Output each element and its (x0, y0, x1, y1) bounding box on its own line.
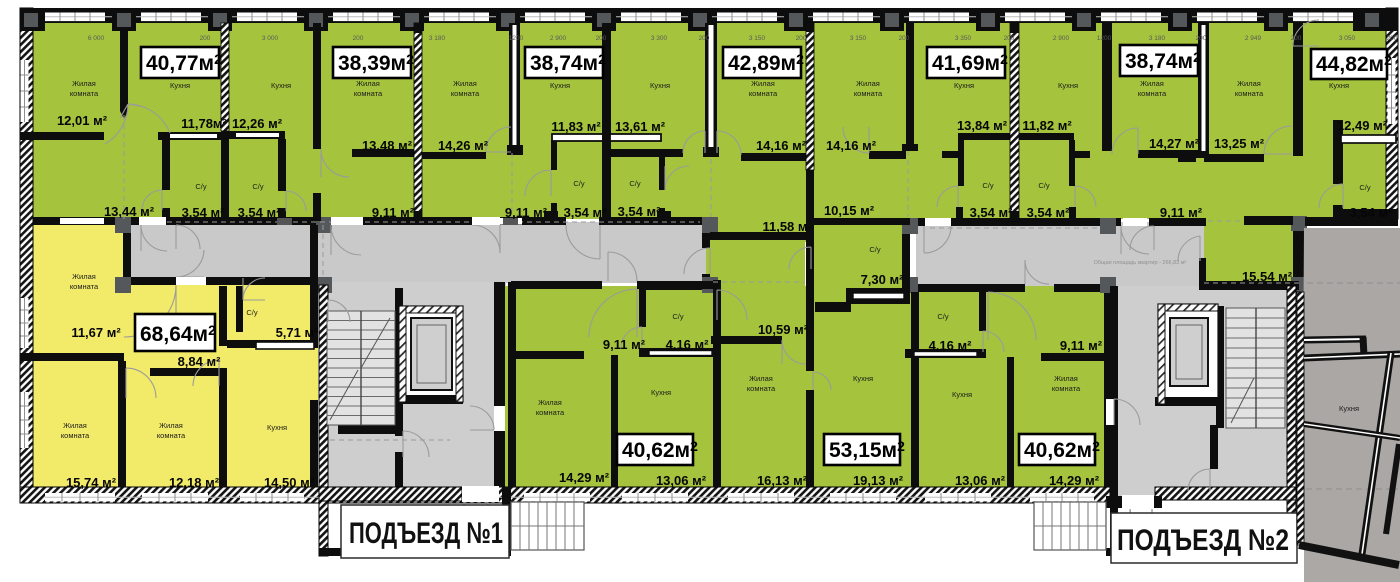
svg-text:3 350: 3 350 (955, 35, 972, 42)
svg-text:12,01 м²: 12,01 м² (57, 113, 108, 128)
svg-text:Кухня: Кухня (1339, 404, 1359, 413)
svg-text:14,29 м²: 14,29 м² (1049, 473, 1100, 488)
svg-text:14,26 м²: 14,26 м² (438, 138, 489, 153)
svg-text:Жилая: Жилая (856, 79, 880, 88)
svg-text:9,11 м²: 9,11 м² (372, 205, 415, 220)
svg-text:9,11 м²: 9,11 м² (1160, 205, 1203, 220)
svg-text:10,59 м²: 10,59 м² (758, 322, 809, 337)
svg-text:3,54 м²: 3,54 м² (1350, 205, 1394, 220)
svg-text:4,16 м²: 4,16 м² (929, 338, 973, 353)
svg-text:7,30 м²: 7,30 м² (861, 272, 905, 287)
svg-text:1200: 1200 (509, 35, 524, 42)
svg-text:200: 200 (699, 35, 710, 42)
svg-text:комната: комната (451, 89, 480, 98)
svg-text:4,16 м²: 4,16 м² (666, 337, 710, 352)
svg-text:Кухня: Кухня (952, 390, 972, 399)
svg-text:38,74м2: 38,74м2 (530, 51, 606, 75)
svg-text:С/у: С/у (573, 179, 585, 188)
svg-text:Жилая: Жилая (63, 421, 87, 430)
svg-text:53,15м2: 53,15м2 (829, 438, 905, 462)
svg-text:14,16 м²: 14,16 м² (826, 138, 877, 153)
svg-text:13,48 м²: 13,48 м² (362, 138, 413, 153)
svg-text:комната: комната (354, 89, 383, 98)
svg-text:19,13 м²: 19,13 м² (853, 473, 904, 488)
svg-text:200: 200 (1387, 35, 1398, 42)
svg-text:Жилая: Жилая (159, 421, 183, 430)
svg-text:38,39м2: 38,39м2 (338, 51, 414, 75)
svg-text:Жилая: Жилая (72, 272, 96, 281)
svg-text:13,84 м²: 13,84 м² (957, 118, 1008, 133)
svg-text:41,69м2: 41,69м2 (932, 51, 1008, 75)
svg-text:комната: комната (536, 408, 565, 417)
svg-text:Жилая: Жилая (1140, 79, 1164, 88)
svg-text:14,29 м²: 14,29 м² (559, 470, 610, 485)
svg-text:Кухня: Кухня (550, 81, 570, 90)
svg-text:С/у: С/у (1359, 183, 1371, 192)
svg-text:14,50 м²: 14,50 м² (264, 475, 315, 490)
svg-text:Жилая: Жилая (72, 79, 96, 88)
svg-text:14,27 м²: 14,27 м² (1149, 136, 1200, 151)
svg-text:11,83 м²: 11,83 м² (551, 119, 601, 134)
svg-text:С/у: С/у (869, 245, 881, 254)
svg-text:200: 200 (1291, 35, 1302, 42)
svg-text:Жилая: Жилая (751, 79, 775, 88)
svg-text:9,11 м²: 9,11 м² (1060, 338, 1103, 353)
svg-text:13,44 м²: 13,44 м² (104, 204, 155, 219)
svg-text:комната: комната (157, 431, 186, 440)
svg-text:200: 200 (353, 35, 364, 42)
svg-text:200: 200 (1004, 35, 1015, 42)
svg-text:200: 200 (899, 35, 910, 42)
svg-text:С/у: С/у (195, 182, 207, 191)
svg-text:13,06 м²: 13,06 м² (656, 473, 707, 488)
svg-text:Кухня: Кухня (267, 423, 287, 432)
svg-text:14,16 м²: 14,16 м² (756, 138, 807, 153)
svg-text:С/у: С/у (982, 181, 994, 190)
svg-text:3 180: 3 180 (1149, 35, 1166, 42)
svg-text:13,06 м²: 13,06 м² (955, 473, 1006, 488)
svg-text:2 900: 2 900 (1053, 35, 1070, 42)
svg-text:11,58 м: 11,58 м (762, 219, 807, 234)
svg-text:40,62м2: 40,62м2 (1024, 438, 1100, 462)
svg-text:40,62м2: 40,62м2 (622, 438, 698, 462)
svg-text:68,64м2: 68,64м2 (140, 322, 216, 346)
svg-text:1200: 1200 (1097, 35, 1112, 42)
svg-text:200: 200 (796, 35, 807, 42)
svg-text:Кухня: Кухня (651, 388, 671, 397)
svg-text:Жилая: Жилая (356, 79, 380, 88)
svg-text:Жилая: Жилая (749, 374, 773, 383)
svg-text:3,54 м²: 3,54 м² (618, 204, 662, 219)
svg-text:С/у: С/у (629, 179, 641, 188)
svg-text:11,78м²: 11,78м² (181, 116, 227, 131)
svg-text:2 949: 2 949 (1245, 35, 1262, 42)
svg-text:комната: комната (1138, 89, 1167, 98)
svg-text:12,49 м²: 12,49 м² (1337, 118, 1388, 133)
svg-text:Общая площадь квартир - 266,83: Общая площадь квартир - 266,83 м² (1094, 260, 1187, 266)
svg-text:9,11 м²: 9,11 м² (603, 337, 646, 352)
svg-text:Жилая: Жилая (538, 398, 562, 407)
svg-text:Кухня: Кухня (271, 81, 291, 90)
svg-text:44,82м2: 44,82м2 (1316, 52, 1392, 76)
svg-text:С/у: С/у (246, 308, 258, 317)
svg-text:С/у: С/у (252, 182, 264, 191)
svg-text:С/у: С/у (1038, 181, 1050, 190)
svg-text:комната: комната (1235, 89, 1264, 98)
svg-text:Кухня: Кухня (170, 81, 190, 90)
svg-text:комната: комната (70, 282, 99, 291)
svg-text:3,54 м²: 3,54 м² (1027, 205, 1071, 220)
svg-text:2 900: 2 900 (550, 35, 567, 42)
svg-text:комната: комната (70, 89, 99, 98)
svg-text:3 300: 3 300 (651, 35, 668, 42)
svg-text:3,54 м²: 3,54 м² (970, 205, 1014, 220)
svg-text:15,74 м²: 15,74 м² (66, 475, 117, 490)
svg-text:11,82 м²: 11,82 м² (1022, 118, 1072, 133)
svg-text:200: 200 (1196, 35, 1207, 42)
svg-text:3,54 м²: 3,54 м² (564, 205, 608, 220)
svg-text:40,77м2: 40,77м2 (146, 51, 222, 75)
svg-text:200: 200 (596, 35, 607, 42)
svg-text:комната: комната (854, 89, 883, 98)
svg-text:ПОДЪЕЗД №2: ПОДЪЕЗД №2 (1117, 524, 1289, 557)
svg-text:10,15 м²: 10,15 м² (824, 203, 875, 218)
svg-text:С/у: С/у (937, 312, 949, 321)
svg-text:3 000: 3 000 (262, 35, 279, 42)
svg-text:ПОДЪЕЗД №1: ПОДЪЕЗД №1 (349, 517, 503, 550)
svg-text:Кухня: Кухня (853, 374, 873, 383)
svg-text:5,71 м²: 5,71 м² (276, 325, 320, 340)
svg-text:Кухня: Кухня (1329, 81, 1349, 90)
svg-text:3,54 м²: 3,54 м² (182, 205, 226, 220)
svg-text:3,54 м²: 3,54 м² (238, 205, 282, 220)
svg-text:13,61 м²: 13,61 м² (615, 119, 666, 134)
svg-text:15,54 м²: 15,54 м² (1242, 269, 1293, 284)
svg-text:Жилая: Жилая (453, 79, 477, 88)
svg-text:3 180: 3 180 (429, 35, 446, 42)
svg-text:комната: комната (749, 89, 778, 98)
svg-text:16,13 м²: 16,13 м² (757, 473, 808, 488)
svg-text:6 000: 6 000 (88, 35, 105, 42)
svg-text:8,84 м²: 8,84 м² (178, 354, 222, 369)
svg-text:комната: комната (1052, 384, 1081, 393)
svg-text:200: 200 (200, 35, 211, 42)
svg-text:Кухня: Кухня (650, 81, 670, 90)
svg-text:С/у: С/у (672, 312, 684, 321)
svg-text:13,25 м²: 13,25 м² (1214, 136, 1265, 151)
svg-text:42,89м2: 42,89м2 (728, 51, 804, 75)
svg-text:3 150: 3 150 (749, 35, 766, 42)
svg-text:комната: комната (61, 431, 90, 440)
svg-text:Кухня: Кухня (954, 81, 974, 90)
svg-text:12,26 м²: 12,26 м² (232, 116, 283, 131)
svg-text:11,67 м²: 11,67 м² (71, 325, 121, 340)
svg-text:комната: комната (747, 384, 776, 393)
svg-text:Кухня: Кухня (1058, 81, 1078, 90)
svg-text:Жилая: Жилая (1054, 374, 1078, 383)
svg-text:38,74м2: 38,74м2 (1125, 49, 1201, 73)
svg-text:Жилая: Жилая (1237, 79, 1261, 88)
svg-text:9,11 м²: 9,11 м² (505, 205, 548, 220)
svg-text:3 150: 3 150 (850, 35, 867, 42)
svg-text:3 050: 3 050 (1339, 35, 1356, 42)
svg-text:12,18 м²: 12,18 м² (169, 475, 220, 490)
